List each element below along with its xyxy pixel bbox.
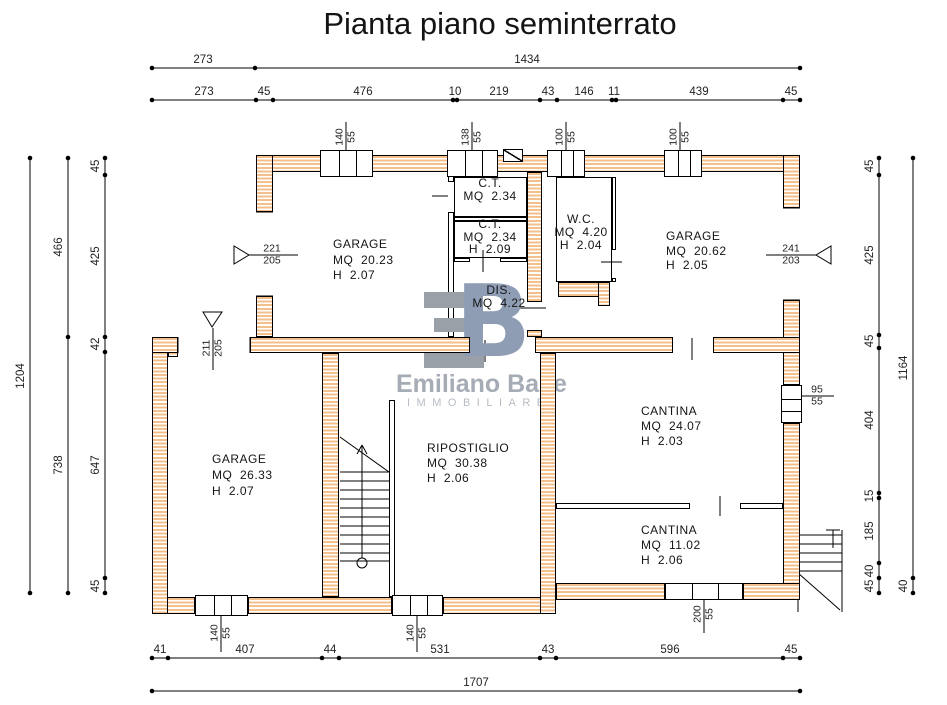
dimension-tick-dot <box>610 98 615 103</box>
fraction-numerator: 140 <box>335 126 346 148</box>
dimension-tick-dot <box>538 98 543 103</box>
dimension-tick-dot <box>150 689 155 694</box>
wall-hatch-mid-wall-c <box>535 337 673 353</box>
fraction-numerator: 95 <box>809 385 825 396</box>
window-mullion <box>356 151 357 176</box>
window-mullion <box>718 584 719 599</box>
dimension-label: 45 <box>90 580 102 593</box>
dimension-tick-dot <box>877 561 882 566</box>
dimension-tick-dot <box>103 335 108 340</box>
room-label-line: GARAGE <box>212 451 273 467</box>
dimension-label: 40 <box>864 565 876 578</box>
dimension-tick-dot <box>877 591 882 596</box>
window-mullion <box>690 151 691 176</box>
room-label-garage-1: GARAGEMQ 20.23H 2.07 <box>333 237 394 284</box>
wall-hatch-mid-wall-d <box>713 337 800 353</box>
room-label-line: MQ 2.34 <box>463 190 516 203</box>
dimension-tick-dot <box>66 591 71 596</box>
room-label-line: H 2.06 <box>427 471 509 486</box>
dimension-tick-dot <box>538 656 543 661</box>
fraction-numerator: 200 <box>693 603 704 625</box>
window <box>320 150 373 177</box>
dimension-tick-dot <box>877 156 882 161</box>
room-label-line: H 2.09 <box>463 243 516 256</box>
dimension-tick-dot <box>554 656 559 661</box>
wall-hatch-bottom-wall-b <box>248 597 392 614</box>
room-label-line: MQ 4.22 <box>472 297 525 310</box>
plan-line <box>798 573 840 610</box>
dimension-tick-dot <box>66 156 71 161</box>
window-mullion <box>692 584 693 599</box>
dimension-tick-dot <box>103 350 108 355</box>
thin-wall <box>500 258 527 262</box>
dimension-label: 185 <box>864 521 876 540</box>
window-mullion <box>410 596 411 615</box>
window-mullion <box>561 151 562 176</box>
thin-wall <box>612 177 616 250</box>
stair-circle-icon <box>357 558 367 568</box>
dimension-label: 42 <box>90 338 102 351</box>
dimension-tick-dot <box>451 98 456 103</box>
dimension-label: 45 <box>864 160 876 173</box>
room-label-line: MQ 26.33 <box>212 467 273 483</box>
room-label-ct-2: C.T.MQ 2.34H 2.09 <box>463 218 516 256</box>
window-mullion <box>339 151 340 176</box>
dimension-label: 407 <box>235 644 254 656</box>
dimension-tick-dot <box>254 98 259 103</box>
wall-hatch-left-wall-upper-a <box>256 155 273 212</box>
dimension-label: 44 <box>324 644 337 656</box>
thin-wall <box>612 278 616 282</box>
window <box>547 150 585 177</box>
room-label-wc: W.C.MQ 4.20H 2.04 <box>554 213 607 252</box>
dimension-label: 476 <box>353 86 372 98</box>
dimension-tick-dot <box>150 98 155 103</box>
fraction-numerator: 100 <box>555 126 566 148</box>
dimension-label: 1164 <box>898 356 910 381</box>
wall-hatch-mid-wall-a <box>152 337 178 353</box>
dimension-tick-dot <box>614 98 619 103</box>
dimension-tick-dot <box>103 156 108 161</box>
dimension-tick-dot <box>103 173 108 178</box>
thin-wall <box>740 503 783 509</box>
door-triangle-icon <box>816 246 831 264</box>
fraction-denominator: 55 <box>472 126 484 148</box>
dimension-label: 45 <box>864 580 876 593</box>
window-mullion <box>782 399 801 400</box>
window <box>195 595 248 616</box>
room-label-cantina-2: CANTINAMQ 11.02H 2.06 <box>641 523 701 568</box>
room-label-ct-1: C.T.MQ 2.34 <box>463 177 516 203</box>
dimension-label: 43 <box>542 644 555 656</box>
fraction-numerator: 140 <box>406 622 417 644</box>
window-mullion <box>465 151 466 176</box>
room-label-line: MQ 20.23 <box>333 253 394 269</box>
dimension-label: 466 <box>53 237 65 256</box>
dimension-tick-dot <box>877 496 882 501</box>
size-fraction-label: 10055 <box>669 126 692 148</box>
dimension-label: 15 <box>864 490 876 503</box>
dimension-label: 45 <box>90 160 102 173</box>
wall-hatch-mid-wall-b <box>250 337 470 353</box>
dimension-label: 531 <box>430 644 449 656</box>
fraction-denominator: 55 <box>704 603 716 625</box>
fraction-denominator: 205 <box>261 255 283 267</box>
fraction-denominator: 55 <box>809 396 825 408</box>
fraction-numerator: 221 <box>261 244 283 255</box>
dimension-tick-dot <box>798 656 803 661</box>
wall-hatch-left-wall-lower <box>152 337 168 614</box>
dimension-label: 738 <box>53 455 65 474</box>
fraction-numerator: 100 <box>669 126 680 148</box>
room-label-line: MQ 20.62 <box>666 244 727 259</box>
dimension-label: 425 <box>90 246 102 265</box>
dimension-tick-dot <box>798 98 803 103</box>
floorplan-canvas: Pianta piano seminterrato B Emiliano Bas… <box>0 0 947 705</box>
dimension-tick-dot <box>877 576 882 581</box>
size-fraction-label: 211205 <box>202 337 225 359</box>
dimension-tick-dot <box>253 66 258 71</box>
window-mullion <box>214 596 215 615</box>
dimension-tick-dot <box>911 591 916 596</box>
fraction-denominator: 203 <box>780 255 802 267</box>
room-label-line: H 2.07 <box>333 268 394 284</box>
dimension-tick-dot <box>28 156 33 161</box>
dimension-tick-dot <box>798 66 803 71</box>
dimension-label: 439 <box>689 86 708 98</box>
dimension-tick-dot <box>150 66 155 71</box>
fraction-denominator: 205 <box>213 337 225 359</box>
room-label-line: CANTINA <box>641 404 702 419</box>
dimension-label: 1204 <box>15 363 27 389</box>
wall-hatch-stair-left-wall <box>322 353 339 597</box>
dimension-label: 43 <box>542 86 555 98</box>
dimension-label: 404 <box>864 410 876 429</box>
room-label-dis: DIS.MQ 4.22 <box>472 284 525 310</box>
fraction-denominator: 55 <box>566 126 578 148</box>
window-mullion <box>678 151 679 176</box>
size-fraction-label: 14055 <box>335 126 358 148</box>
size-fraction-label: 20055 <box>693 603 716 625</box>
size-fraction-label: 10055 <box>555 126 578 148</box>
room-label-line: H 2.05 <box>666 258 727 273</box>
dimension-label: 273 <box>193 54 212 66</box>
thin-wall <box>389 400 395 597</box>
fraction-numerator: 241 <box>780 244 802 255</box>
dimension-label: 45 <box>258 86 271 98</box>
room-label-line: H 2.06 <box>641 553 701 568</box>
wall-hatch-bottom-wall-d <box>556 583 665 600</box>
thin-wall <box>556 503 690 509</box>
room-label-line: MQ 24.07 <box>641 419 702 434</box>
size-fraction-label: 221205 <box>261 244 283 267</box>
dimension-label: 45 <box>785 644 798 656</box>
size-fraction-label: 241203 <box>780 244 802 267</box>
size-fraction-label: 9555 <box>809 385 825 408</box>
room-label-line: H 2.03 <box>641 434 702 449</box>
dimension-tick-dot <box>781 656 786 661</box>
wall-hatch-wc-floor-wall-b <box>598 282 610 306</box>
size-fraction-label: 13855 <box>461 126 484 148</box>
dimension-label: 45 <box>785 86 798 98</box>
dimension-label: 11 <box>608 86 620 98</box>
fraction-numerator: 211 <box>202 337 213 359</box>
window <box>781 385 802 423</box>
room-label-line: MQ 30.38 <box>427 456 509 471</box>
wall-hatch-left-wall-upper-b <box>256 296 273 337</box>
fraction-denominator: 55 <box>417 622 429 644</box>
window <box>665 583 743 600</box>
dimension-label: 45 <box>864 335 876 348</box>
window-mullion <box>427 596 428 615</box>
fraction-numerator: 138 <box>461 126 472 148</box>
dimension-tick-dot <box>877 491 882 496</box>
dimension-tick-dot <box>103 576 108 581</box>
room-label-ripostiglio: RIPOSTIGLIOMQ 30.38H 2.06 <box>427 441 509 486</box>
fraction-denominator: 55 <box>346 126 358 148</box>
dimension-tick-dot <box>28 591 33 596</box>
dimension-label: 647 <box>90 455 102 474</box>
dimension-label: 425 <box>864 245 876 264</box>
dimension-tick-dot <box>455 98 460 103</box>
dimension-tick-dot <box>271 98 276 103</box>
door-triangle-icon <box>203 312 222 327</box>
dimension-tick-dot <box>66 335 71 340</box>
room-label-line: GARAGE <box>333 237 394 253</box>
size-fraction-label: 14055 <box>406 622 429 644</box>
dimension-label: 219 <box>489 86 508 98</box>
dimension-tick-dot <box>877 333 882 338</box>
fraction-denominator: 55 <box>680 126 692 148</box>
dimension-label: 273 <box>194 86 213 98</box>
dimension-label: 1707 <box>463 677 489 689</box>
window-mullion <box>573 151 574 176</box>
room-label-garage-3: GARAGEMQ 26.33H 2.07 <box>212 451 273 499</box>
dimension-tick-dot <box>337 656 342 661</box>
room-label-line: GARAGE <box>666 229 727 244</box>
room-label-line: H 2.04 <box>554 239 607 252</box>
room-label-line: CANTINA <box>641 523 701 538</box>
window-mullion <box>482 151 483 176</box>
dimension-label: 596 <box>660 644 679 656</box>
dimension-tick-dot <box>320 656 325 661</box>
dimension-tick-dot <box>555 98 560 103</box>
dimension-label: 10 <box>449 86 462 98</box>
chimney-icon <box>503 149 523 162</box>
room-label-garage-2: GARAGEMQ 20.62H 2.05 <box>666 229 727 273</box>
wall-hatch-ct-wc-wall-a <box>527 172 542 302</box>
dimension-tick-dot <box>798 689 803 694</box>
dimension-tick-dot <box>911 576 916 581</box>
dimension-label: 146 <box>574 86 593 98</box>
page-title: Pianta piano seminterrato <box>323 6 676 42</box>
dimension-tick-dot <box>150 656 155 661</box>
window <box>392 595 443 616</box>
dimension-label: 41 <box>154 644 167 656</box>
room-label-line: MQ 11.02 <box>641 538 701 553</box>
fraction-numerator: 140 <box>210 622 221 644</box>
wall-hatch-rip-cantina-wall <box>540 353 556 614</box>
plan-line <box>340 437 389 472</box>
dimension-label: 40 <box>898 580 910 593</box>
dimension-tick-dot <box>911 156 916 161</box>
dimension-tick-dot <box>166 656 171 661</box>
window <box>664 150 702 177</box>
wall-hatch-ct-wc-wall-b <box>527 330 542 337</box>
dimension-tick-dot <box>781 98 786 103</box>
dimension-tick-dot <box>877 173 882 178</box>
room-label-line: C.T. <box>463 218 516 231</box>
dimension-tick-dot <box>877 346 882 351</box>
fraction-denominator: 55 <box>221 622 233 644</box>
wall-hatch-right-wall-upper <box>783 155 800 208</box>
window <box>447 150 498 177</box>
door-triangle-icon <box>234 246 249 264</box>
wall-hatch-bottom-wall-e <box>743 583 800 600</box>
size-fraction-label: 14055 <box>210 622 233 644</box>
dimension-tick-dot <box>103 591 108 596</box>
thin-wall <box>454 258 470 262</box>
wall-hatch-right-wall-lower <box>783 423 800 600</box>
window-mullion <box>782 411 801 412</box>
room-label-cantina-1: CANTINAMQ 24.07H 2.03 <box>641 404 702 449</box>
room-label-line: RIPOSTIGLIO <box>427 441 509 456</box>
dimension-label: 1434 <box>514 54 540 66</box>
window-mullion <box>231 596 232 615</box>
room-label-line: H 2.07 <box>212 483 273 499</box>
